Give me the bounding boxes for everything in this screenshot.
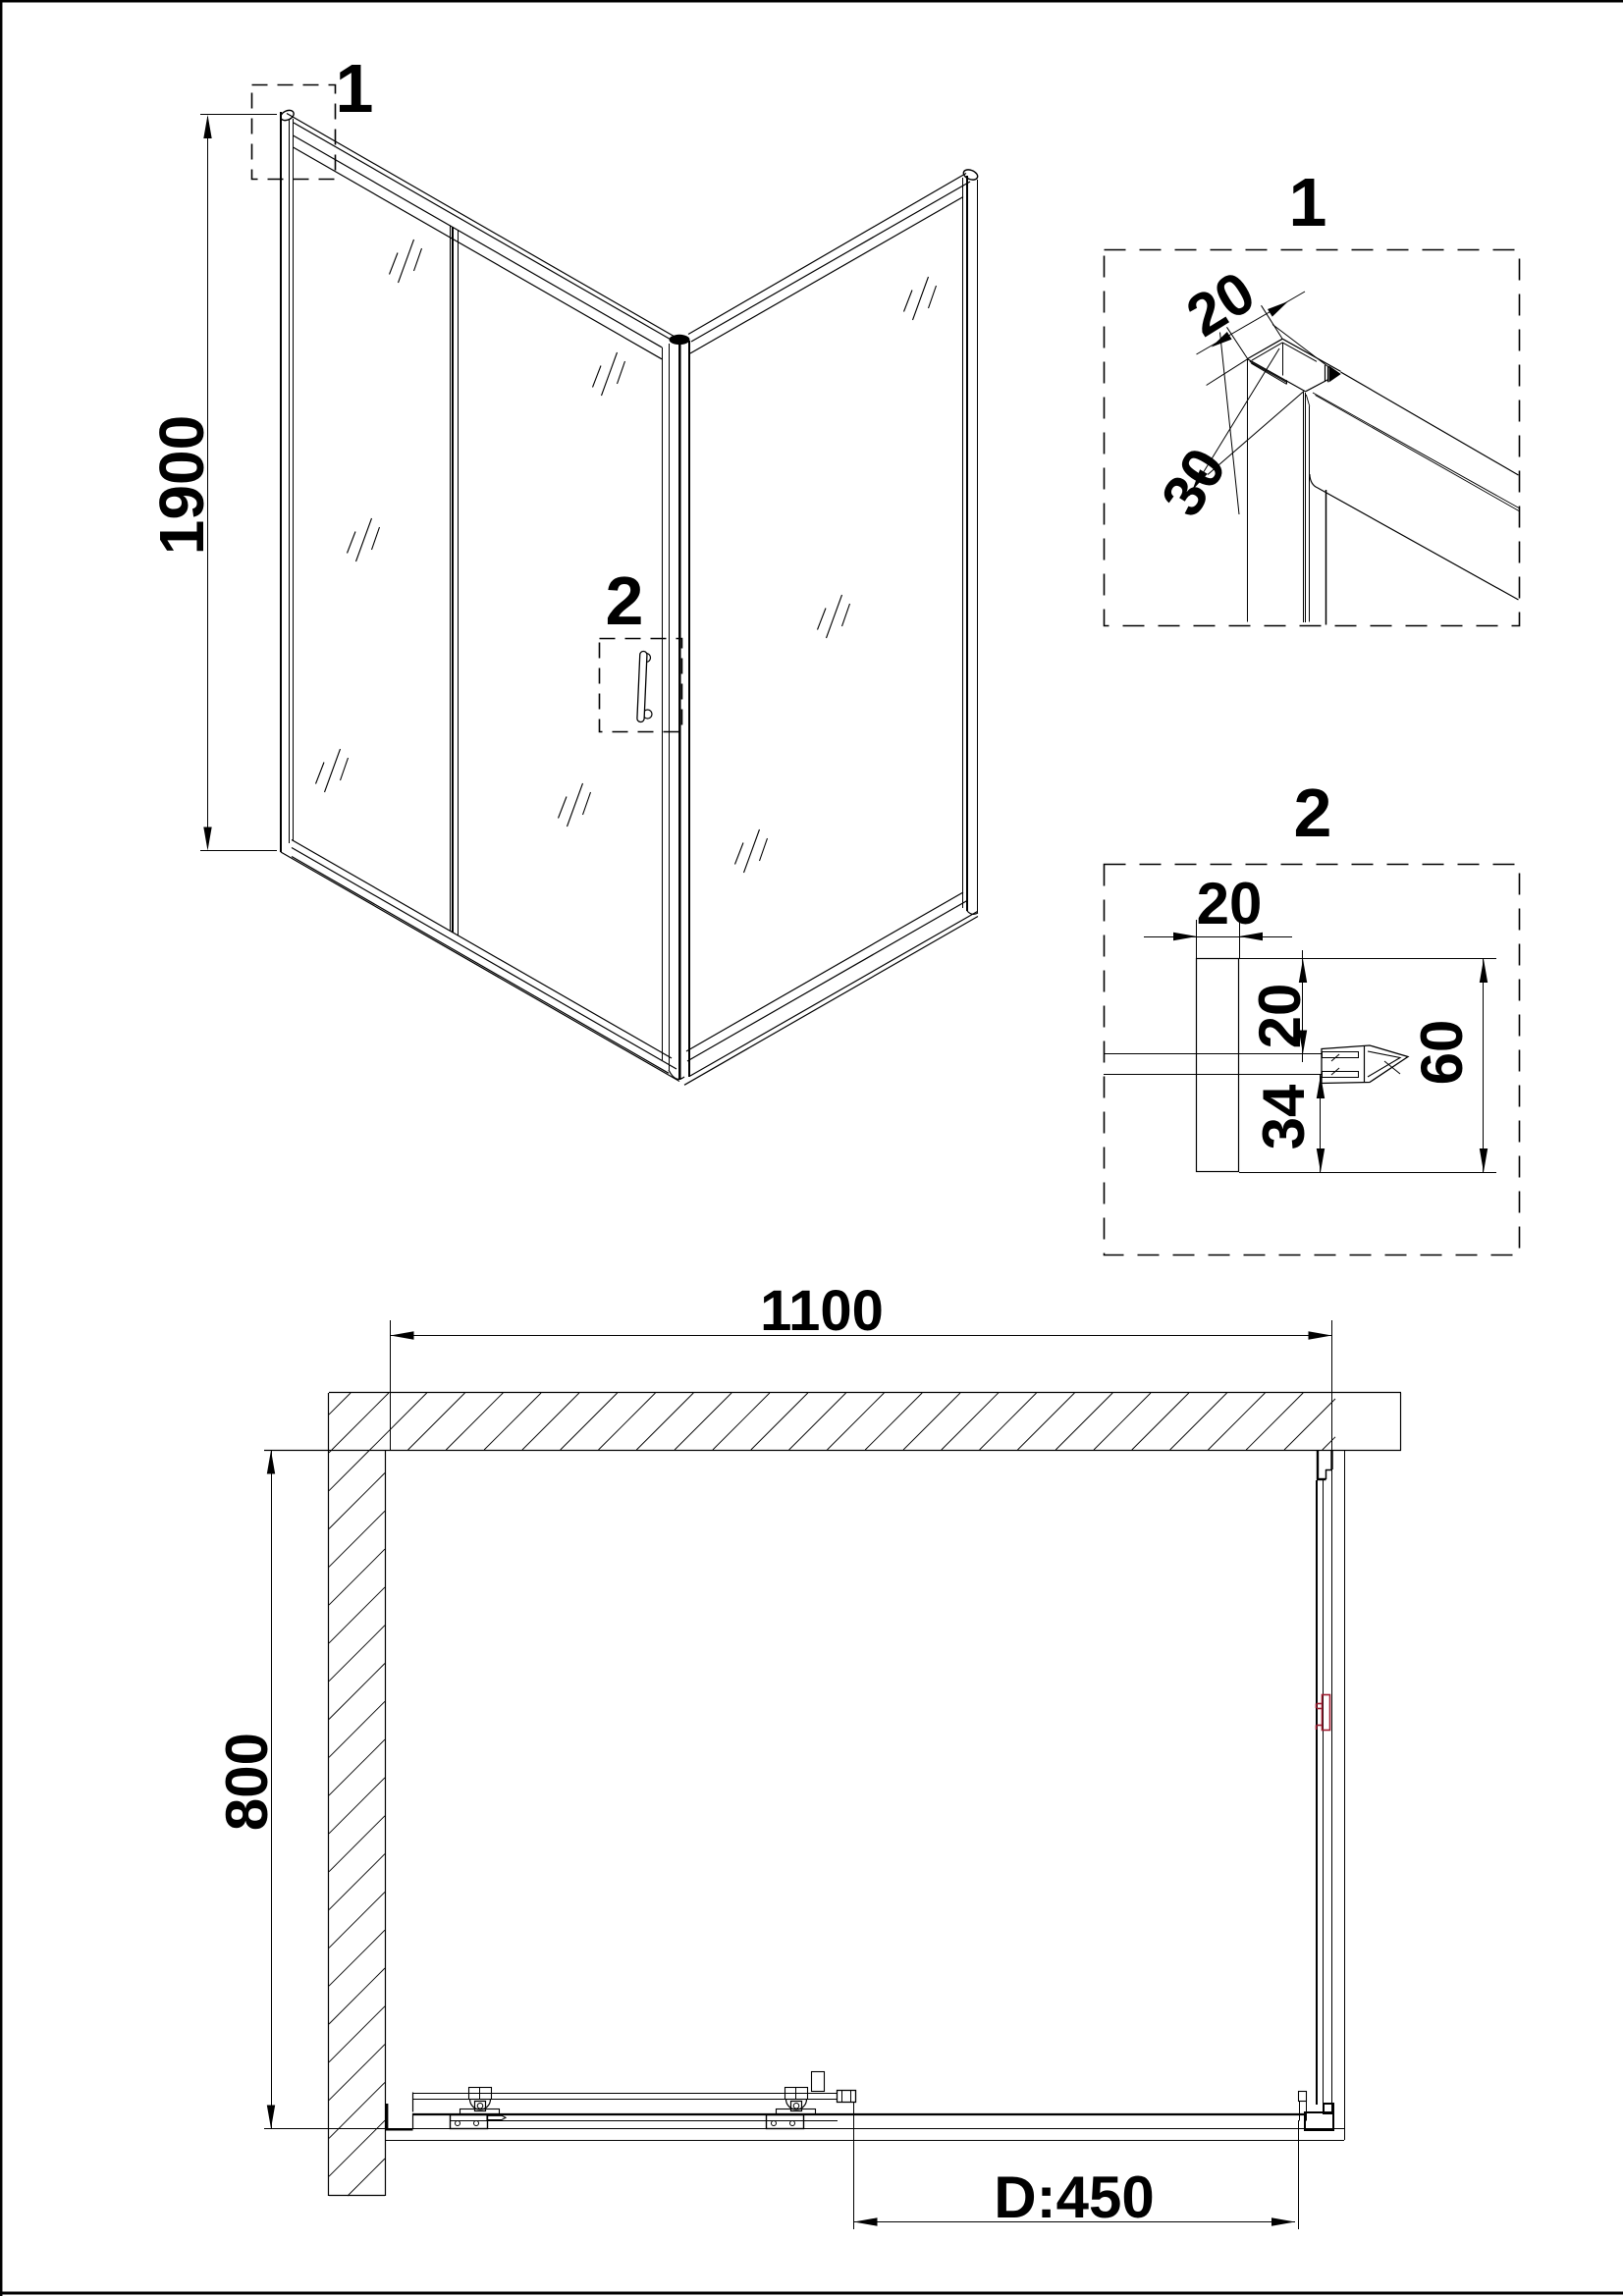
svg-text:1: 1 [1289,164,1327,240]
svg-text:2: 2 [1294,774,1332,851]
svg-text:20: 20 [1197,871,1263,936]
svg-text:2: 2 [606,562,644,639]
svg-text:20: 20 [1247,984,1313,1049]
svg-text:1: 1 [336,50,374,127]
svg-text:800: 800 [214,1733,280,1831]
svg-text:D:450: D:450 [994,2164,1154,2230]
svg-text:34: 34 [1251,1084,1317,1149]
svg-text:1100: 1100 [760,1279,884,1343]
svg-text:60: 60 [1409,1020,1475,1086]
svg-text:1900: 1900 [146,415,217,555]
